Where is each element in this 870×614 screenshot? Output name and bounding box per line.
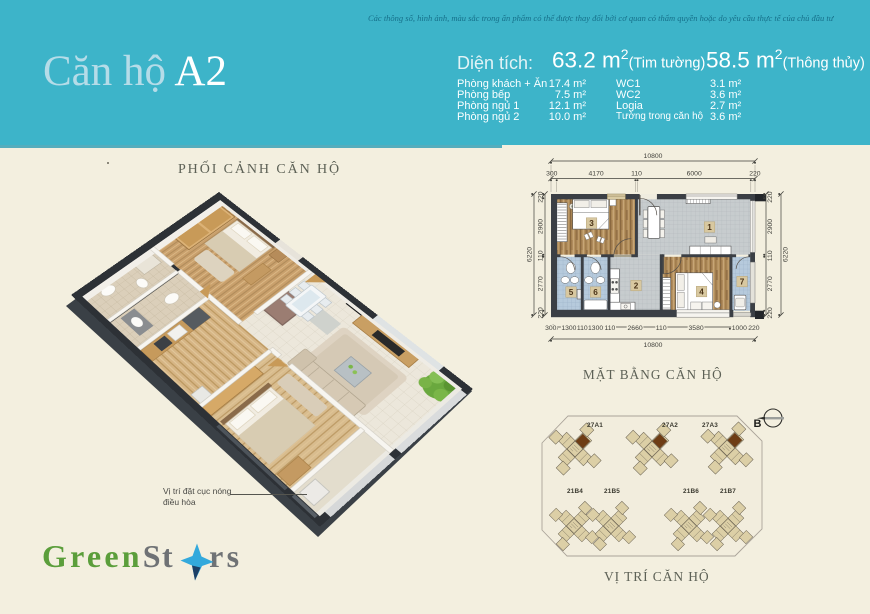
- svg-text:B: B: [754, 418, 762, 430]
- svg-text:1300: 1300: [561, 325, 576, 332]
- svg-text:27A3: 27A3: [702, 422, 718, 429]
- svg-text:110: 110: [631, 171, 642, 178]
- svg-text:4: 4: [699, 287, 704, 296]
- svg-text:5: 5: [569, 288, 574, 297]
- svg-text:21B7: 21B7: [720, 488, 736, 495]
- svg-text:6220: 6220: [783, 247, 790, 262]
- svg-text:110: 110: [577, 325, 588, 332]
- svg-text:6000: 6000: [687, 171, 702, 178]
- svg-text:21B4: 21B4: [567, 488, 583, 495]
- svg-text:110: 110: [767, 250, 774, 261]
- svg-text:2770: 2770: [767, 276, 774, 291]
- svg-text:27A2: 27A2: [662, 422, 678, 429]
- svg-text:110: 110: [656, 325, 667, 332]
- svg-text:21B6: 21B6: [683, 488, 699, 495]
- svg-text:27A1: 27A1: [587, 422, 603, 429]
- svg-text:300: 300: [545, 325, 557, 332]
- svg-text:7: 7: [740, 277, 745, 286]
- svg-text:3: 3: [589, 219, 594, 228]
- svg-text:220: 220: [538, 191, 545, 203]
- svg-text:220: 220: [748, 325, 760, 332]
- svg-text:2770: 2770: [538, 276, 545, 291]
- svg-text:2900: 2900: [538, 219, 545, 234]
- svg-text:220: 220: [767, 191, 774, 203]
- svg-text:220: 220: [749, 171, 761, 178]
- svg-text:1: 1: [707, 223, 712, 232]
- svg-text:10800: 10800: [644, 153, 663, 160]
- svg-text:220: 220: [767, 307, 774, 319]
- svg-text:4170: 4170: [589, 171, 604, 178]
- svg-text:10800: 10800: [644, 342, 663, 349]
- svg-text:2: 2: [634, 281, 639, 290]
- svg-text:1300: 1300: [588, 325, 603, 332]
- svg-text:21B5: 21B5: [604, 488, 620, 495]
- svg-text:2660: 2660: [628, 325, 643, 332]
- svg-text:2900: 2900: [767, 219, 774, 234]
- svg-text:110: 110: [604, 325, 615, 332]
- svg-text:220: 220: [538, 307, 545, 319]
- svg-text:110: 110: [538, 250, 545, 261]
- svg-text:1000: 1000: [732, 325, 747, 332]
- svg-text:6: 6: [593, 288, 598, 297]
- svg-text:300: 300: [546, 171, 558, 178]
- svg-text:6220: 6220: [527, 247, 534, 262]
- svg-text:3580: 3580: [689, 325, 704, 332]
